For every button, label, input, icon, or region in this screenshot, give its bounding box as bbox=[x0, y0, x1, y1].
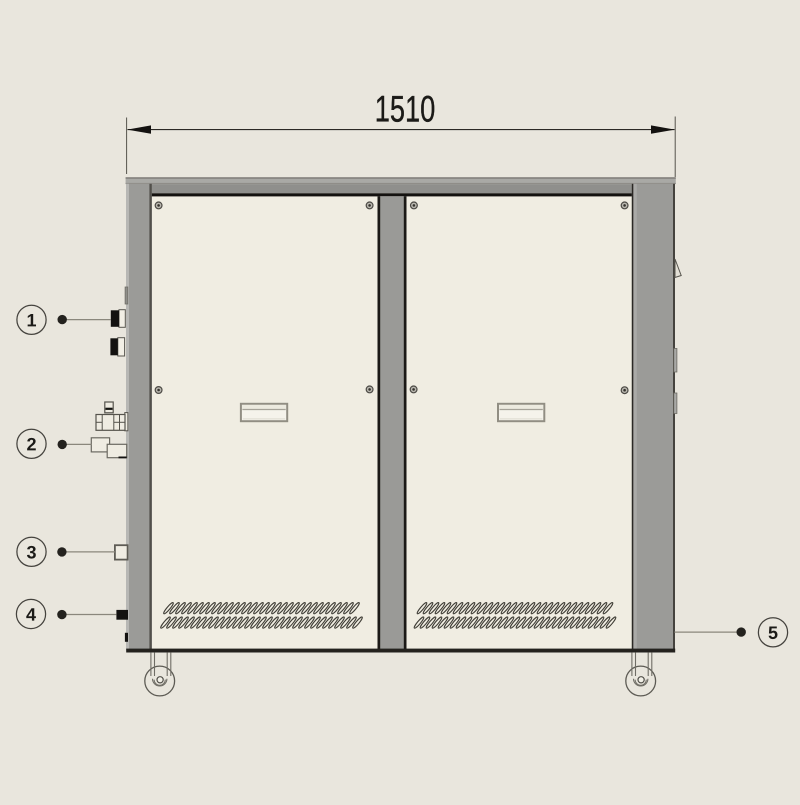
svg-text:2: 2 bbox=[26, 434, 36, 454]
svg-text:5: 5 bbox=[768, 623, 778, 643]
svg-text:1510: 1510 bbox=[375, 88, 436, 129]
svg-text:1: 1 bbox=[26, 310, 36, 330]
svg-text:3: 3 bbox=[26, 542, 36, 562]
svg-text:4: 4 bbox=[26, 605, 36, 625]
